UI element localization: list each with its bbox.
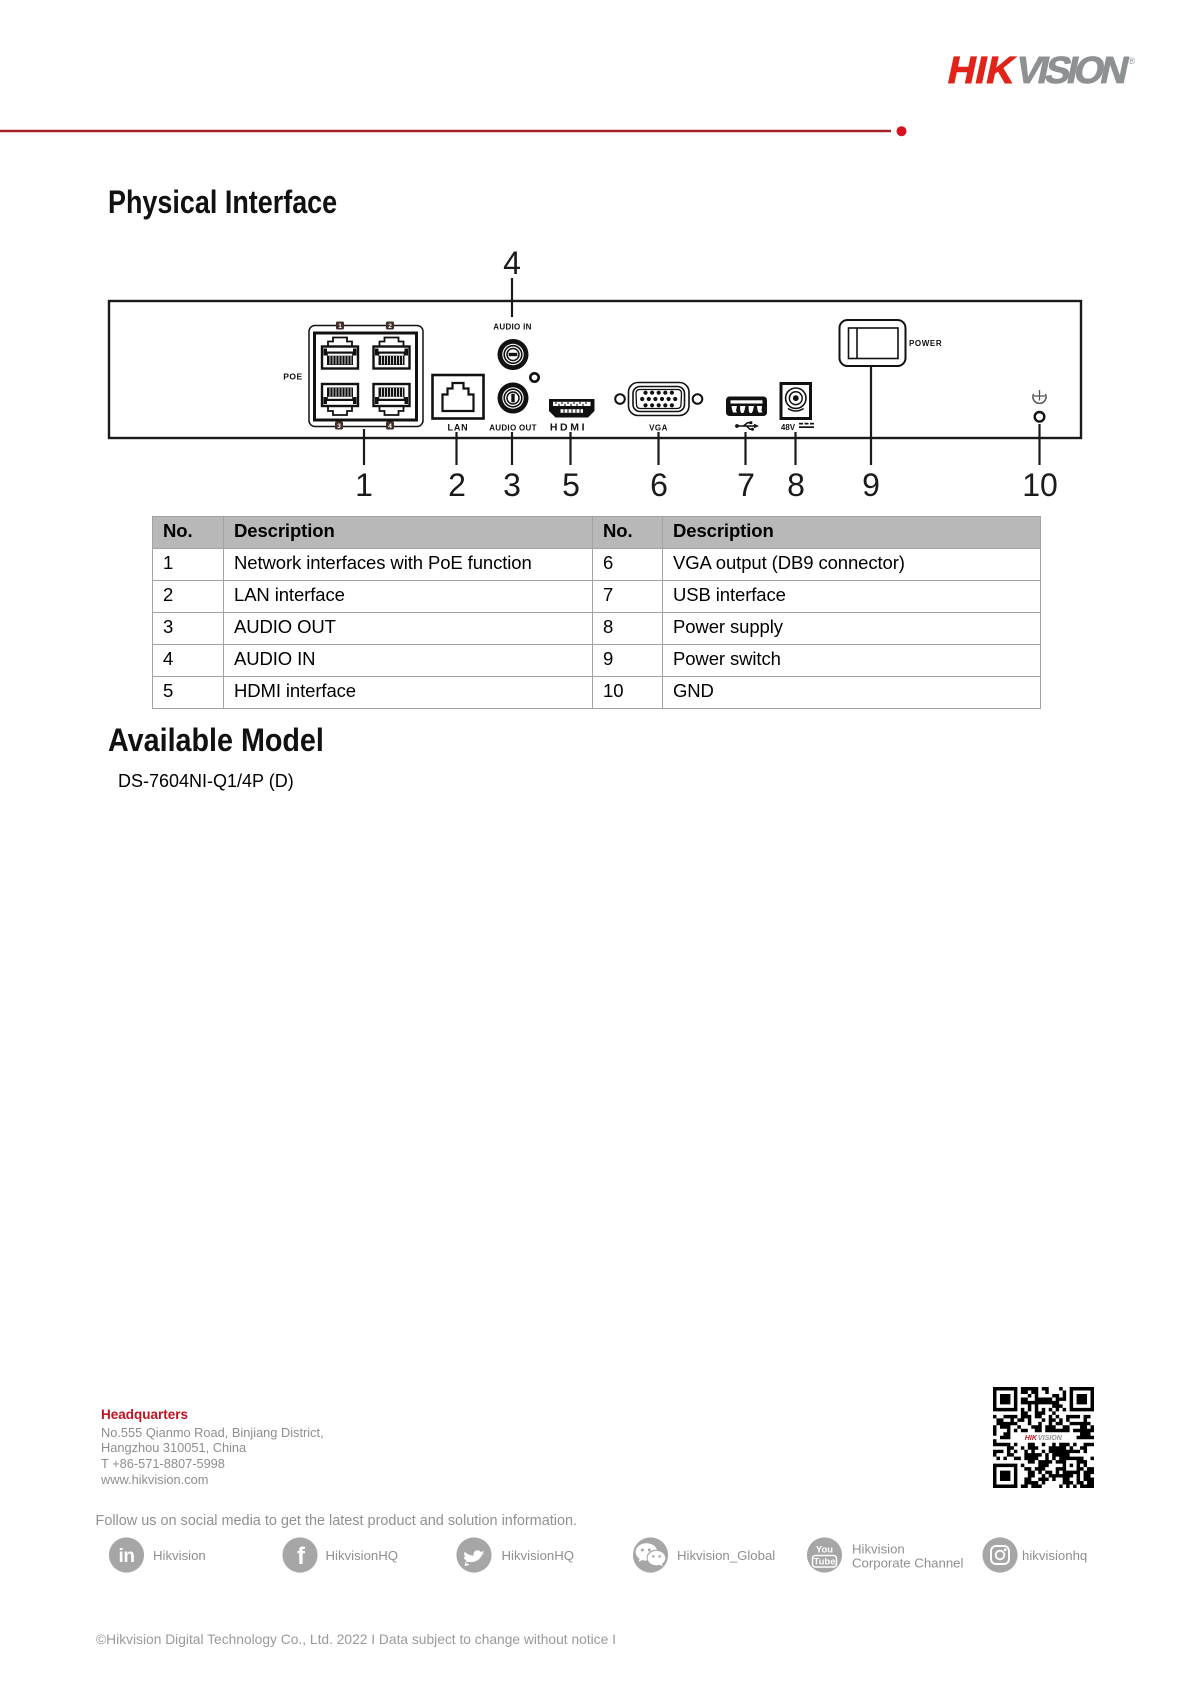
svg-text:AUDIO OUT: AUDIO OUT bbox=[489, 424, 537, 433]
svg-text:HIK: HIK bbox=[1025, 1435, 1038, 1442]
svg-text:1: 1 bbox=[338, 323, 342, 330]
svg-text:f: f bbox=[297, 1543, 306, 1570]
svg-text:2: 2 bbox=[448, 467, 466, 503]
svg-text:HikvisionHQ: HikvisionHQ bbox=[502, 1548, 575, 1563]
svg-text:4: 4 bbox=[503, 245, 521, 281]
svg-text:AUDIO IN: AUDIO IN bbox=[493, 323, 531, 332]
svg-text:1: 1 bbox=[355, 467, 373, 503]
svg-text:POE: POE bbox=[283, 372, 302, 382]
svg-text:VGA: VGA bbox=[649, 424, 668, 433]
svg-text:8: 8 bbox=[787, 467, 805, 503]
svg-text:6: 6 bbox=[650, 467, 668, 503]
svg-text:Tube: Tube bbox=[814, 1557, 836, 1568]
svg-text:Hikvision: Hikvision bbox=[153, 1548, 206, 1563]
svg-text:3: 3 bbox=[337, 423, 341, 430]
svg-text:HDMI: HDMI bbox=[550, 422, 587, 434]
svg-text:in: in bbox=[119, 1546, 135, 1567]
svg-text:You: You bbox=[816, 1545, 833, 1556]
svg-text:3: 3 bbox=[503, 467, 521, 503]
svg-text:Hikvision: Hikvision bbox=[852, 1542, 905, 1557]
svg-text:LAN: LAN bbox=[448, 423, 469, 433]
svg-text:hikvisionhq: hikvisionhq bbox=[1022, 1548, 1087, 1563]
svg-text:5: 5 bbox=[562, 467, 580, 503]
svg-text:4: 4 bbox=[388, 423, 392, 430]
svg-text:48V: 48V bbox=[781, 423, 796, 432]
svg-text:2: 2 bbox=[388, 323, 392, 330]
svg-text:VISION: VISION bbox=[1038, 1435, 1063, 1442]
svg-text:9: 9 bbox=[862, 467, 880, 503]
svg-text:10: 10 bbox=[1022, 467, 1058, 503]
svg-text:HikvisionHQ: HikvisionHQ bbox=[326, 1548, 399, 1563]
svg-text:Hikvision_Global: Hikvision_Global bbox=[677, 1548, 775, 1563]
svg-text:POWER: POWER bbox=[909, 339, 942, 348]
svg-text:7: 7 bbox=[737, 467, 755, 503]
svg-text:Corporate Channel: Corporate Channel bbox=[852, 1556, 964, 1571]
